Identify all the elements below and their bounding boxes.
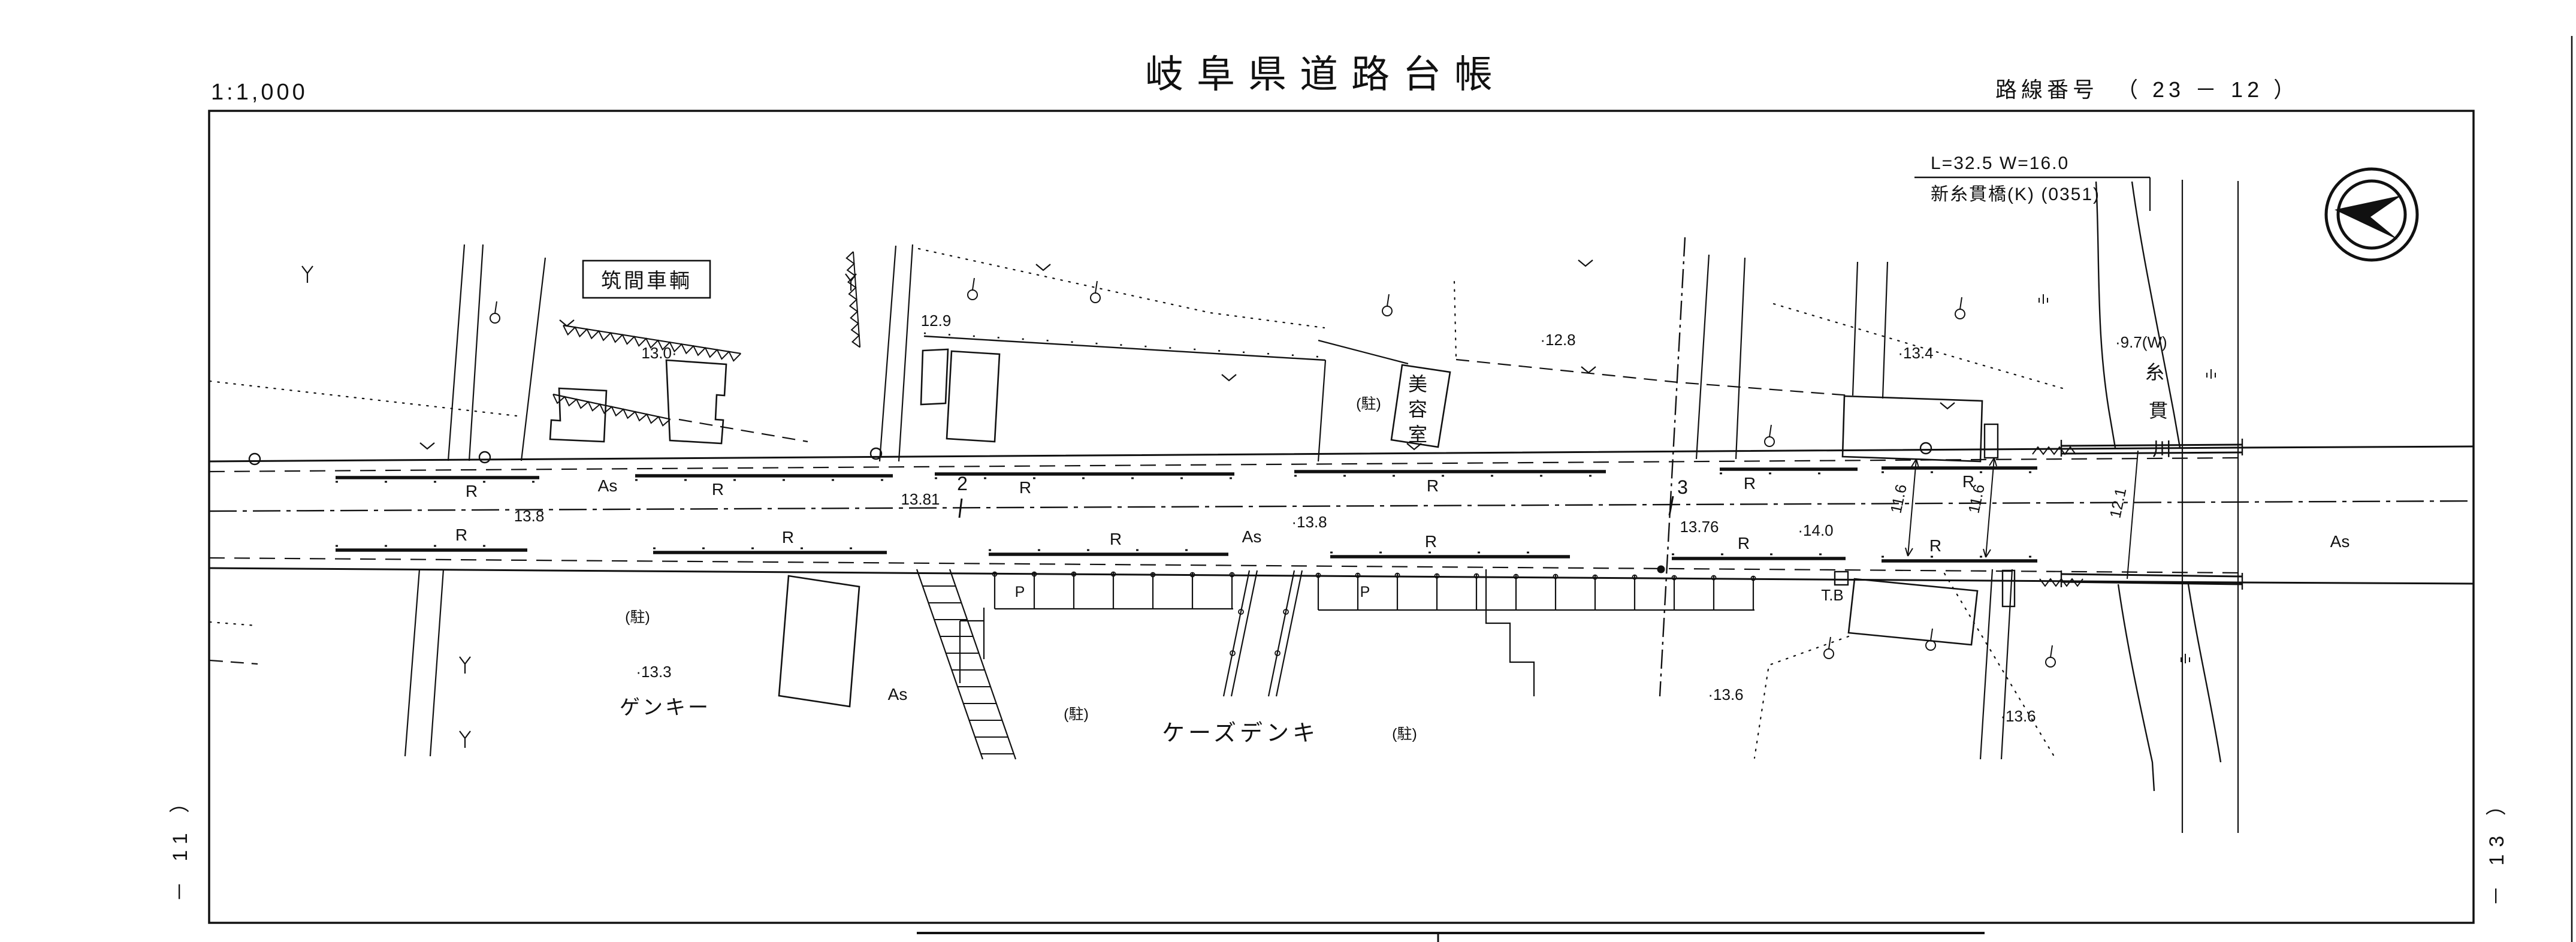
pavement-label-As: As — [1242, 527, 1262, 546]
curb-label-R: R — [1738, 534, 1750, 552]
pavement-label-As: As — [2330, 532, 2350, 551]
building — [1849, 579, 1977, 645]
river-bank — [2188, 584, 2221, 762]
spot-elevation: ·13.6 — [1708, 686, 1743, 704]
curb-label-R: R — [1427, 476, 1439, 495]
curb-label-R: R — [1929, 536, 1941, 555]
spot-elevation: 12.9 — [921, 312, 952, 330]
buildings — [550, 261, 2015, 707]
river-bank — [2096, 182, 2115, 448]
boundary-dashdot-line — [1660, 237, 1685, 696]
spot-elevation: ·13.4 — [1898, 344, 1933, 362]
curb-label-R: R — [1425, 532, 1437, 551]
telephone-box-label: T.B — [1821, 586, 1844, 604]
river-name-char: 糸 — [2145, 361, 2164, 383]
station-2: 13.81 2 — [901, 473, 967, 518]
salon-label-char: 美 — [1408, 373, 1427, 395]
curb-labels: R R R R R R R R R R R R — [455, 472, 1974, 555]
route-number-label: 路線番号 — [1995, 77, 2098, 102]
parking-note: (駐) — [1356, 395, 1381, 412]
business-label-genky: ゲンキー — [620, 696, 711, 719]
pavement-label-As: As — [888, 685, 908, 704]
building — [550, 388, 606, 442]
river-zone-lines — [2182, 180, 2238, 833]
curb-segments-top — [336, 468, 2037, 482]
map-labels: 筑間車輌 美 容 室 ゲンキー ケーズデンキ (駐) (駐) (駐) (駐) P… — [514, 270, 2036, 746]
business-label-ksdenki: ケーズデンキ — [1162, 721, 1319, 746]
pavement-label-As: As — [598, 476, 618, 495]
fences — [551, 252, 860, 427]
river-bank — [2118, 584, 2154, 791]
sheet-frame — [209, 36, 2572, 942]
curb-segments-bottom — [336, 546, 2037, 561]
river: 糸 貫 川 ·9.7(W) — [2096, 182, 2221, 791]
spot-elevation: ·13.6 — [2000, 707, 2036, 725]
road-width-value: 12.1 — [2106, 487, 2130, 520]
station-3-label: 3 — [1677, 476, 1688, 498]
road-width-value: 11.6 — [1887, 482, 1910, 515]
gate-fences — [1224, 570, 1302, 696]
spot-elevation: ·12.8 — [1540, 331, 1575, 349]
building — [921, 349, 948, 404]
sheet-ref-left: － 11 ） — [169, 786, 192, 902]
parking-note: (駐) — [1064, 706, 1089, 723]
map-frame — [209, 111, 2474, 923]
bridge-dimensions: L=32.5 W=16.0 — [1931, 153, 2069, 173]
station-2-label: 2 — [957, 473, 968, 494]
station-3-elevation: 13.76 — [1680, 518, 1719, 536]
tree-mark-icon — [302, 266, 856, 748]
bridge-name: 新糸貫橋(K) (0351) — [1931, 185, 2100, 204]
main-road: R R R R R R R R R R R R As As As As 13.8… — [209, 439, 2474, 704]
station-3-point — [1657, 566, 1665, 573]
curb-label-R: R — [1019, 478, 1031, 497]
curb-label-R: R — [466, 482, 478, 500]
bridge-label: L=32.5 W=16.0 新糸貫橋(K) (0351) — [1914, 153, 2150, 211]
parking-stall-label: P — [1360, 584, 1370, 600]
river-width-note: ·9.7(W) — [2115, 333, 2167, 351]
sheet-ref-right: － 13 ） — [2486, 788, 2508, 906]
station-2-elevation: 13.81 — [901, 490, 940, 508]
curb-label-R: R — [712, 480, 724, 499]
salon-label-char: 容 — [1408, 398, 1427, 420]
curb-label-R: R — [782, 528, 794, 547]
building — [947, 351, 999, 442]
route-number-value: （ 23 － 12 ） — [2116, 77, 2299, 102]
river-name-char: 貫 — [2149, 400, 2168, 421]
spot-elevation: ·13.8 — [1291, 513, 1327, 531]
street-lower-left — [405, 569, 443, 756]
spot-elevation: 13.0· — [641, 344, 677, 362]
parking-stall-label: P — [1015, 584, 1025, 600]
street-upper-left — [448, 244, 483, 461]
curb-label-R: R — [455, 526, 467, 544]
parking-note: (駐) — [1392, 726, 1417, 742]
map-scale: 1:1,000 — [211, 80, 308, 105]
parking-area — [993, 570, 1756, 696]
curb-label-R: R — [1744, 474, 1756, 493]
business-label-chikuma: 筑間車輌 — [601, 270, 692, 292]
building — [1843, 396, 1982, 461]
roadside-structure — [1985, 424, 1998, 458]
telephone-box — [1835, 572, 1848, 585]
street-lower-center-ladder — [917, 569, 1016, 759]
roadside-structure — [2003, 570, 2015, 606]
salon-label-char: 室 — [1408, 424, 1427, 445]
road-ledger-sheet: 1:1,000 岐阜県道路台帳 路線番号 （ 23 － 12 ） － 11 ） … — [0, 0, 2576, 942]
spot-elevation: ·14.0 — [1798, 521, 1833, 539]
building — [666, 360, 726, 443]
river-name-char: 川 — [2152, 438, 2172, 460]
spot-elevation: ·13.3 — [636, 663, 671, 681]
genky-building — [779, 576, 859, 707]
parking-note: (駐) — [625, 609, 650, 626]
page-title: 岐阜県道路台帳 — [1145, 53, 1506, 96]
utility-pole-icon — [490, 278, 2055, 667]
curb-label-R: R — [1110, 530, 1122, 548]
spot-elevation: 13.8 — [514, 507, 545, 525]
header: 1:1,000 岐阜県道路台帳 路線番号 （ 23 － 12 ） — [211, 53, 2299, 105]
north-arrow-icon — [2326, 169, 2417, 260]
